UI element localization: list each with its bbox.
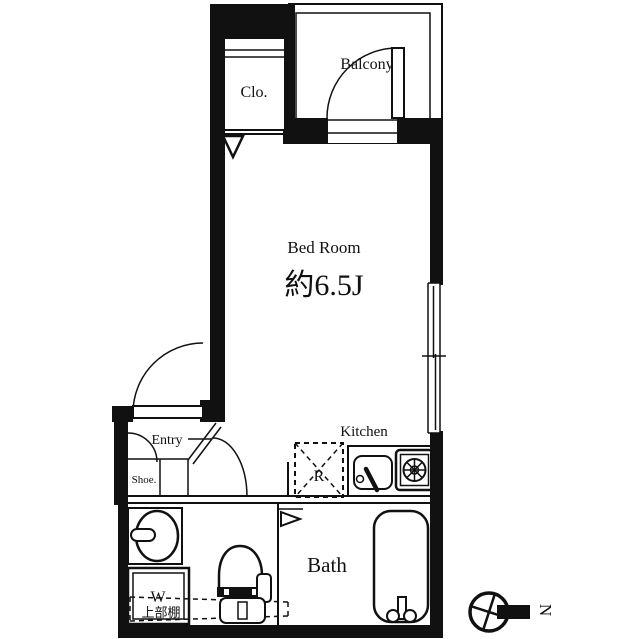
entrance-door-leaf: [133, 406, 203, 418]
compass-needle: [497, 605, 530, 619]
bedroom: Bed Room 約6.5J: [284, 238, 363, 302]
stove-burner-spokes-icon: [404, 459, 426, 481]
sink-faucet-icon: [366, 469, 377, 490]
shoe-box-label: Shoe.: [132, 474, 157, 486]
toilet-bowl: [219, 546, 262, 592]
bathtub-knob-left-icon: [387, 610, 399, 622]
bedroom-size-label: 約6.5J: [284, 269, 363, 302]
bathtub-knob-right-icon: [404, 610, 416, 622]
bath: Bath: [278, 509, 428, 622]
bedroom-label: Bed Room: [287, 238, 360, 257]
balcony-label: Balcony: [340, 56, 393, 73]
balcony-opening: [328, 119, 397, 143]
wall-right-upper: [430, 118, 443, 285]
washroom: W 上部棚: [128, 508, 288, 624]
floorplan-page: Balcony Clo. Bed Room 約6.5J: [0, 0, 640, 639]
wall-left-washroom: [118, 503, 128, 630]
floorplan-drawing: Balcony Clo. Bed Room 約6.5J: [0, 0, 640, 639]
kitchen-label: Kitchen: [340, 424, 388, 440]
entry: Entry Shoe.: [128, 423, 247, 497]
closet: Clo.: [223, 38, 285, 157]
bath-door-arrow-icon: [281, 512, 300, 526]
entry-label: Entry: [151, 433, 182, 448]
window: [422, 283, 446, 433]
wall-left-bedroom: [210, 4, 225, 422]
compass-icon: N: [465, 588, 555, 636]
entry-diagonal-line-2: [193, 427, 221, 464]
bath-label: Bath: [307, 553, 347, 577]
entrance-door: [133, 343, 203, 418]
closet-door-arrow-icon: [223, 136, 243, 157]
refrigerator-label: R: [314, 468, 325, 485]
toilet-seat-notch-1: [224, 589, 229, 595]
wall-balcony-left: [283, 118, 328, 144]
entry-diagonal-line-1: [188, 423, 216, 460]
upper-shelf-label: 上部棚: [141, 605, 180, 620]
entrance-door-arc: [133, 343, 203, 413]
compass-north-label: N: [536, 604, 555, 616]
kitchen: Kitchen R: [295, 424, 433, 497]
sink-drain-icon: [357, 476, 364, 483]
washroom-door-arc: [213, 438, 247, 497]
wall-bottom: [118, 625, 443, 638]
closet-label: Clo.: [240, 84, 267, 101]
balcony-door-leaf: [392, 48, 404, 118]
wall-left-entry: [114, 414, 128, 505]
washbasin-faucet-icon: [131, 529, 155, 541]
